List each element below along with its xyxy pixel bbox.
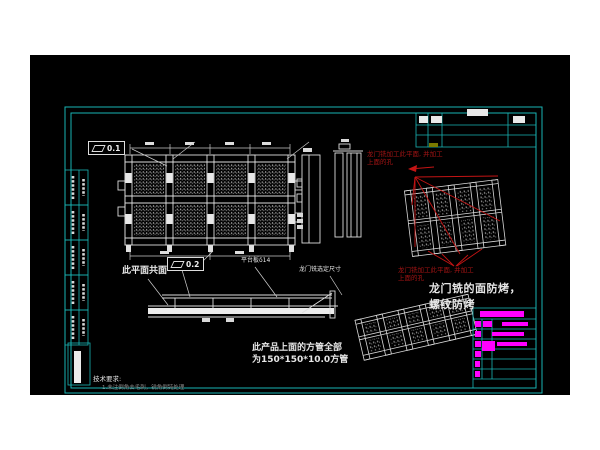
tech-requirements-item: 1.未注倒角去毛刺，锐角倒钝处理	[102, 386, 184, 392]
revision-table-magenta-entries	[475, 311, 528, 377]
flatness-icon	[170, 261, 184, 268]
bake-protection-note-line2: 螺纹防烤	[429, 299, 475, 311]
side-view-b	[333, 139, 363, 237]
bake-protection-note-line1: 龙门铣的面防烤，	[429, 283, 521, 295]
red-annotation-top-line1: 龙门铣加工此平面, 并加工	[367, 151, 443, 158]
title-strip-white-bar	[74, 351, 81, 383]
red-annotation-mid-line1: 龙门铣加工此平面, 并加工	[398, 267, 474, 274]
cad-drawing-canvas[interactable]: 0.1 0.2 龙门铣加工此平面, 并加工 上面的孔 龙门铣加工此平面, 并加工…	[30, 55, 570, 395]
header-table	[416, 109, 536, 147]
gantry-mill-dimension-label: 龙门铣选定尺寸	[299, 267, 341, 273]
header-table-olive-mark	[429, 143, 438, 147]
flatness-tolerance-value-mid: 0.2	[186, 260, 199, 269]
tech-requirements-title: 技术要求:	[93, 376, 121, 383]
front-view	[118, 155, 302, 252]
flatness-tolerance-frame-top: 0.1	[88, 141, 125, 155]
side-view-a	[297, 148, 320, 243]
square-tube-note-line2: 为150*150*10.0方管	[252, 356, 348, 365]
flatness-tolerance-frame-mid: 0.2	[167, 257, 204, 271]
plan-view	[148, 291, 338, 322]
flatness-icon	[91, 145, 105, 152]
coplanar-note: 此平面共面	[122, 267, 167, 276]
title-strip	[65, 170, 90, 385]
red-annotation-mid-line2: 上面的孔	[398, 275, 424, 282]
page: { "page": { "background": "#ffffff", "ca…	[0, 0, 600, 450]
square-tube-note-line1: 此产品上面的方管全部	[252, 344, 342, 353]
flatness-tolerance-value-top: 0.1	[107, 144, 120, 153]
platform-plate-label: 平台板δ14	[241, 258, 270, 264]
red-annotation-top-line2: 上面的孔	[367, 159, 393, 166]
revision-table	[473, 308, 536, 388]
